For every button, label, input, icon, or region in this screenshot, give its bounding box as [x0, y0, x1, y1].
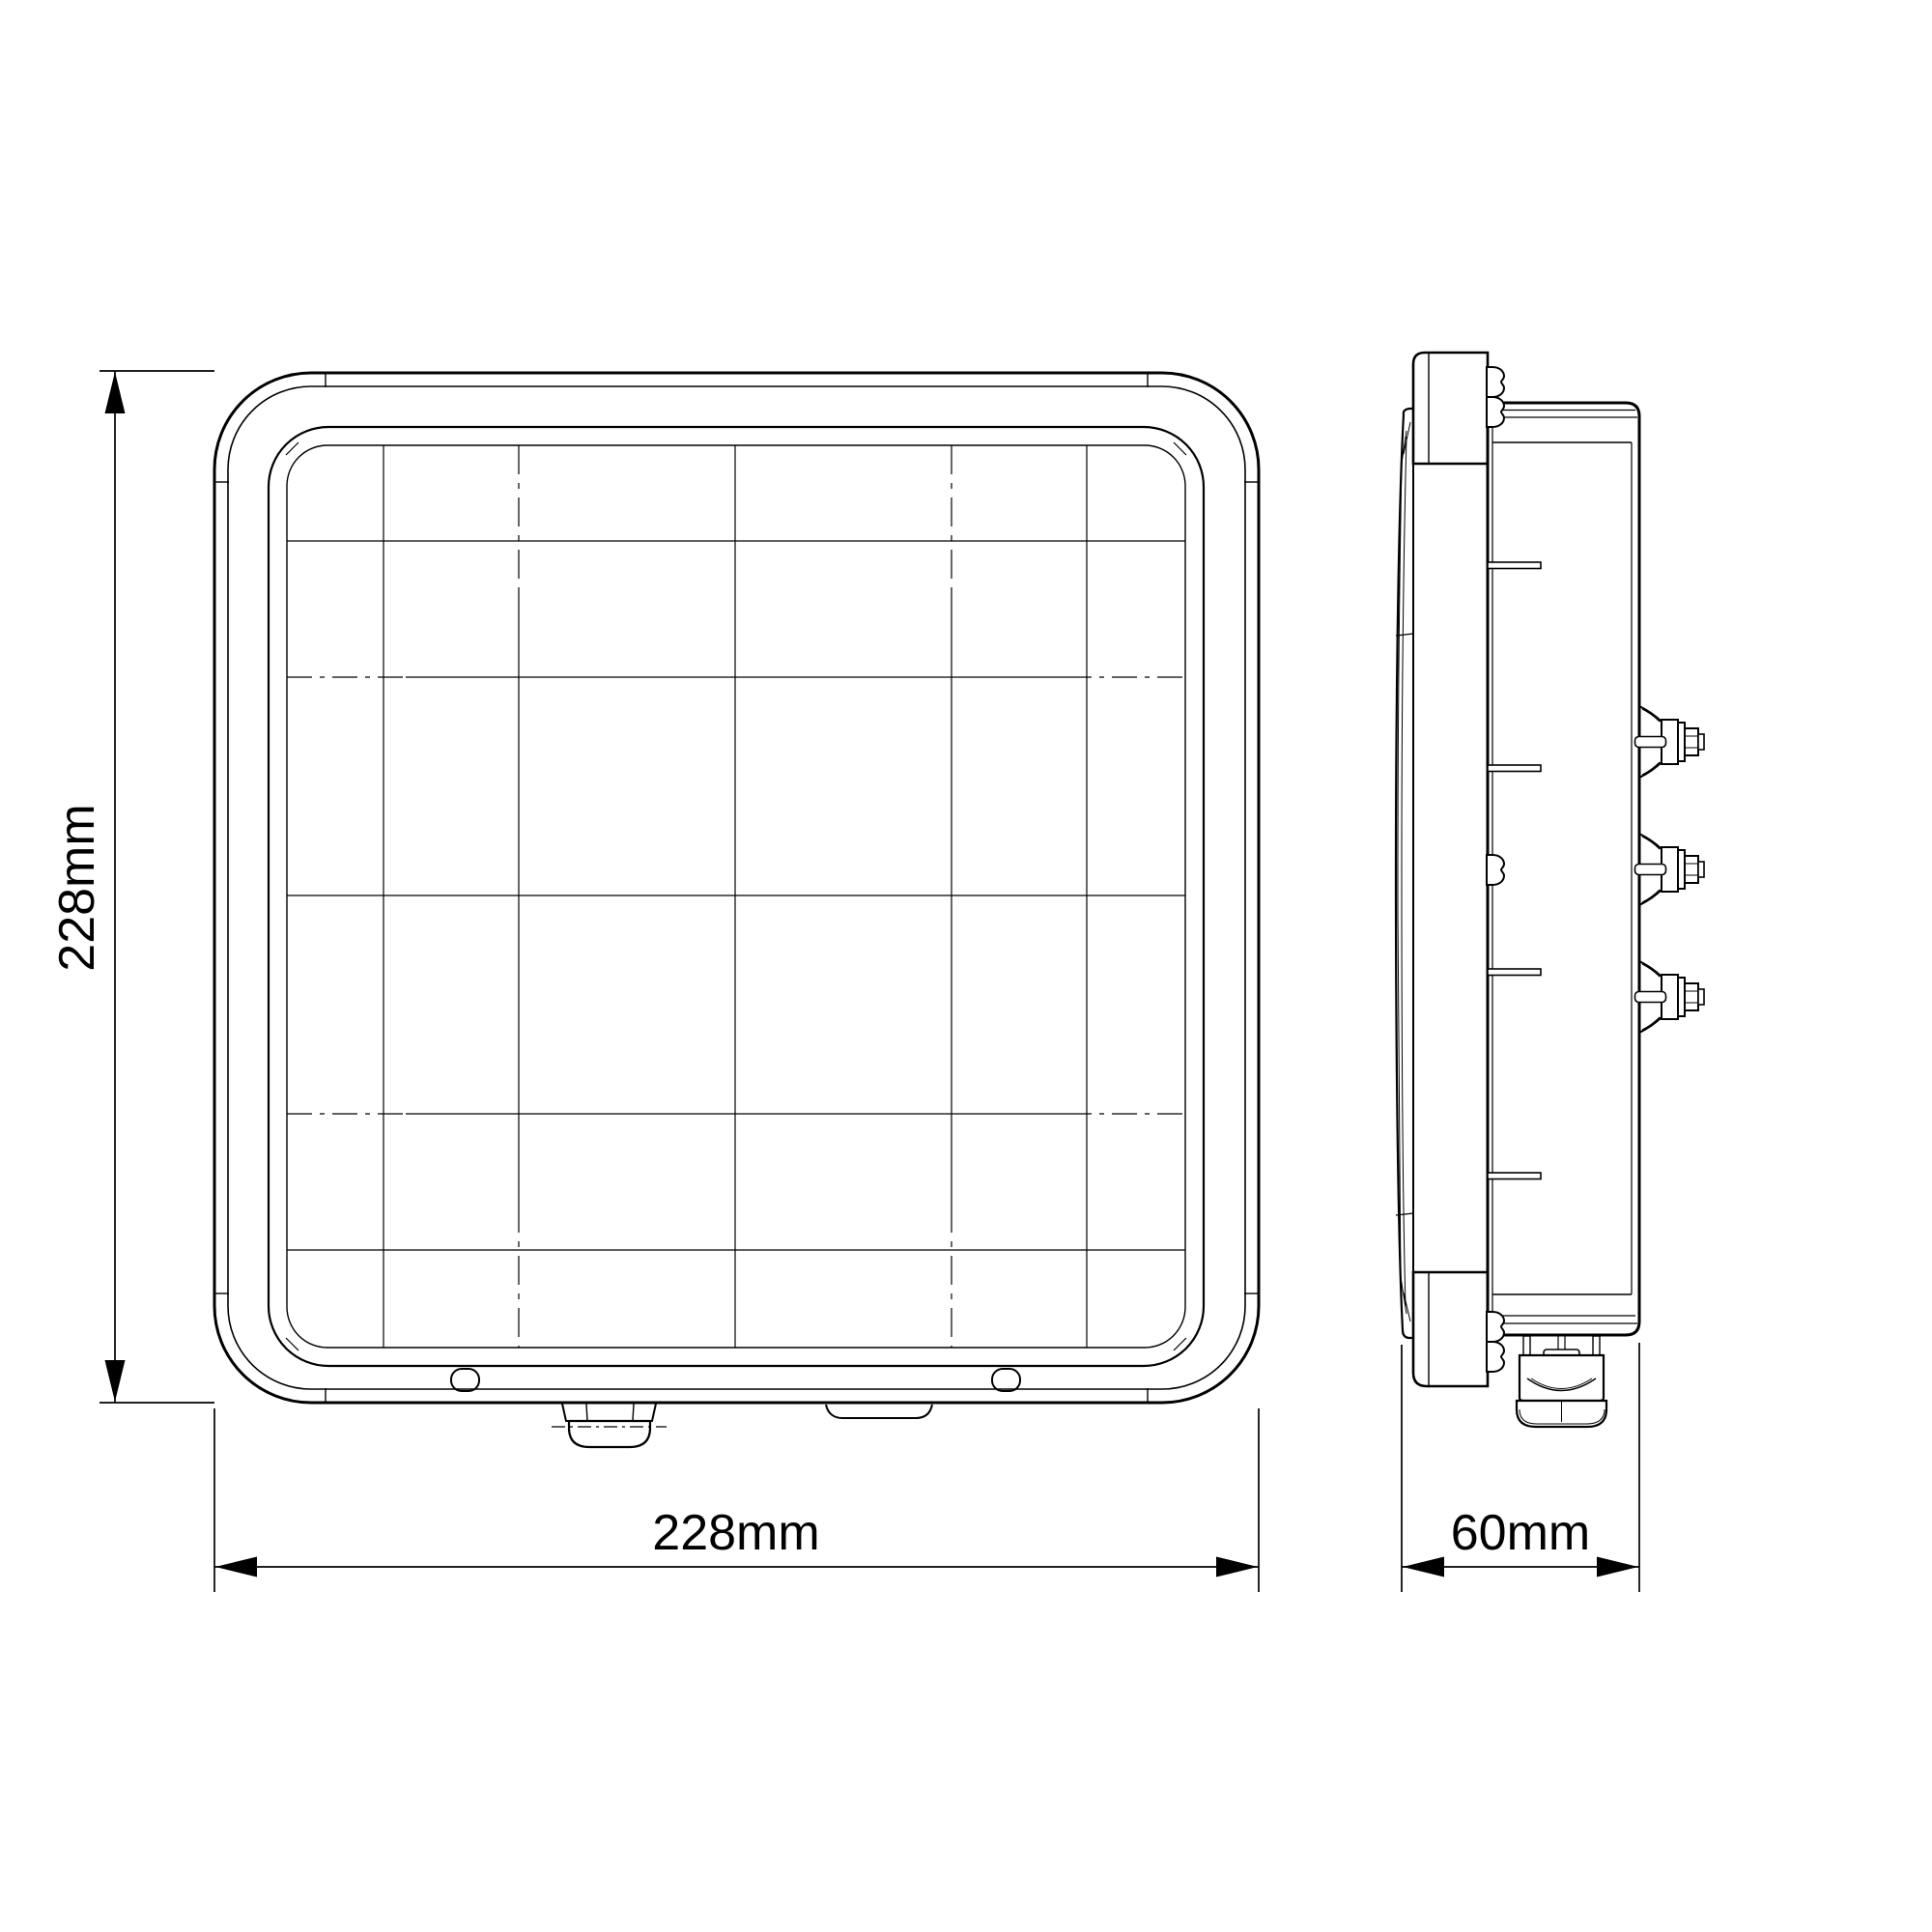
dimension-front-height: 228mm: [49, 371, 214, 1403]
cable-gland-front: [552, 1404, 667, 1447]
dimension-label-side-depth: 60mm: [1451, 1505, 1590, 1561]
side-view: [1396, 353, 1704, 1427]
top-mounting-block: [1413, 353, 1488, 464]
body-profile: [1488, 403, 1639, 1335]
hidden-gland-bump: [826, 1405, 932, 1418]
bezel-outer: [269, 427, 1204, 1366]
mounting-slot-right: [992, 1369, 1020, 1391]
drawing-svg: 228mm 228mm 60mm: [0, 0, 1932, 1932]
front-outer-frame: [214, 373, 1259, 1403]
bezel-corner-chamfers: [286, 442, 1186, 1350]
dimension-label-front-height: 228mm: [49, 804, 105, 971]
rf-connector-middle: [1635, 834, 1705, 905]
corner-tangent-ticks: [214, 373, 1259, 1403]
dimension-label-front-width: 228mm: [652, 1505, 819, 1561]
radome-profile: [1396, 409, 1413, 1338]
front-outer-frame-inner-line: [228, 386, 1245, 1389]
bottom-mounting-block: [1413, 1272, 1488, 1386]
bezel-face: [287, 445, 1185, 1348]
mounting-slot-left: [451, 1369, 479, 1391]
rf-connector-top: [1635, 706, 1705, 778]
cable-gland-side: [1517, 1336, 1606, 1427]
technical-drawing-canvas: 228mm 228mm 60mm: [0, 0, 1932, 1932]
face-grid: [280, 440, 1192, 1352]
rf-connectors: [1635, 706, 1705, 1033]
dimension-front-width: 228mm: [214, 1408, 1259, 1592]
rf-connector-bottom: [1635, 961, 1705, 1033]
front-view: [214, 373, 1259, 1447]
